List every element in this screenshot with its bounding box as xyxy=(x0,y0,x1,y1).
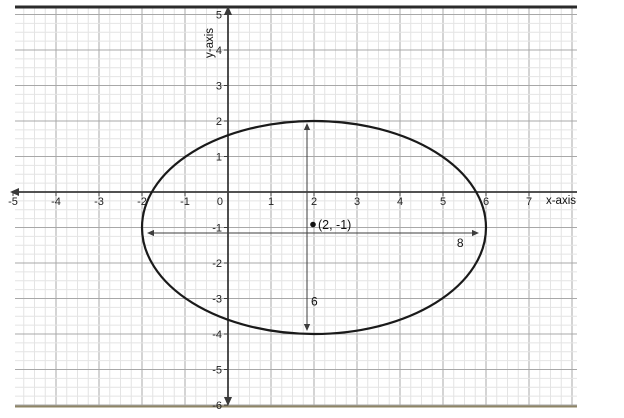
x-tick-label: 3 xyxy=(354,196,360,208)
x-tick-label: 5 xyxy=(440,196,446,208)
ellipse-graph-canvas: x-axisy-axis-5-4-3-2-101234567-6-5-4-3-2… xyxy=(0,0,624,418)
y-tick-label: -4 xyxy=(212,329,222,341)
graph-page: x-axisy-axis-5-4-3-2-101234567-6-5-4-3-2… xyxy=(0,0,624,418)
y-tick-label: 3 xyxy=(216,81,222,93)
x-tick-label: 1 xyxy=(268,196,274,208)
y-tick-label: 2 xyxy=(216,116,222,128)
x-tick-label: -5 xyxy=(8,196,18,208)
x-tick-label: -3 xyxy=(94,196,104,208)
x-axis-title: x-axis xyxy=(546,195,576,207)
x-tick-label: -4 xyxy=(51,196,61,208)
y-tick-label: -2 xyxy=(212,258,222,270)
center-point-label: (2, -1) xyxy=(318,218,351,232)
y-tick-label: -6 xyxy=(212,400,222,412)
x-tick-label: 7 xyxy=(526,196,532,208)
major-axis-length-label: 8 xyxy=(457,236,464,250)
page-background xyxy=(0,0,624,418)
y-tick-label: 5 xyxy=(216,10,222,22)
x-tick-label: 2 xyxy=(311,196,317,208)
y-tick-label: 1 xyxy=(216,152,222,164)
x-tick-label: -1 xyxy=(180,196,190,208)
y-tick-label: -3 xyxy=(212,294,222,306)
x-tick-label: 4 xyxy=(397,196,403,208)
y-tick-label: 4 xyxy=(216,45,222,57)
x-tick-label: 6 xyxy=(483,196,489,208)
center-point-dot xyxy=(310,222,316,228)
x-tick-label-0: 0 xyxy=(217,196,223,208)
y-tick-label: -5 xyxy=(212,365,222,377)
y-axis-title: y-axis xyxy=(204,28,216,58)
minor-axis-length-label: 6 xyxy=(311,295,318,309)
